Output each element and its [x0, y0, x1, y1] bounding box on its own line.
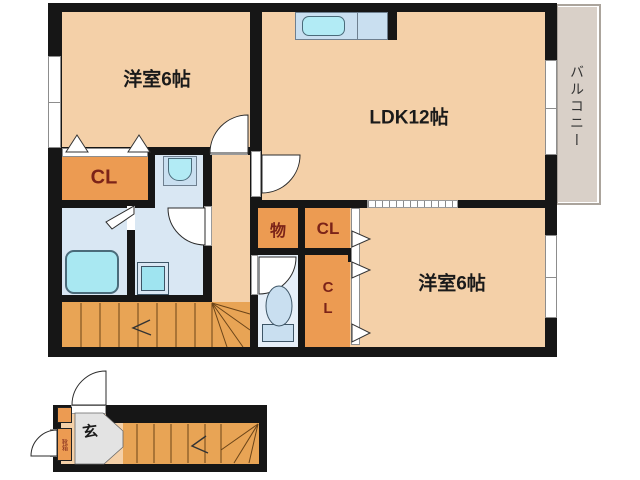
wall-bottom [48, 347, 557, 357]
bedroom2-label: 洋室6帖 [418, 269, 486, 296]
closet1-door-strip [62, 148, 148, 157]
wall-kitchen-stub [388, 3, 397, 40]
window-ldk-balcony [545, 60, 557, 155]
kitchen-counter-divider [357, 12, 358, 40]
wall-ldk-bottom-left [250, 200, 367, 208]
door-entrance [72, 371, 106, 405]
door-opening-ldk [251, 151, 261, 197]
wall-column-mid [250, 248, 358, 255]
window-bedroom2 [545, 235, 557, 318]
wash-basin-bowl [168, 158, 192, 181]
entrance-label: 玄 [81, 420, 99, 443]
wall-ldk-bottom-right [458, 200, 545, 208]
shoe-cabinet-label: 靴箱 [60, 439, 69, 451]
closet3-door-strip [351, 208, 360, 345]
kitchen-sink [302, 16, 345, 36]
entrance-top-thick-wall [106, 405, 259, 423]
floor-plan: 洋室6帖 LDK12帖 洋室6帖 バルコニー CL 物 CL CL 玄 靴箱 [0, 0, 640, 480]
storage-label: 物 [270, 217, 286, 241]
stairs-upper [62, 302, 250, 347]
shoe-cabinet-upper [57, 407, 72, 423]
wall-storage-closet2 [298, 208, 305, 248]
wall-toilet-closet3 [298, 255, 305, 347]
sliding-door-ldk-bedroom2 [367, 200, 458, 208]
door-opening-washroom [204, 206, 212, 246]
bathtub [65, 250, 119, 294]
stairs-lower [123, 423, 259, 464]
washing-machine [141, 266, 165, 291]
window-left [48, 56, 61, 148]
door-opening-entrance [71, 405, 106, 414]
bedroom1-label: 洋室6帖 [123, 65, 191, 92]
wall-top [48, 3, 557, 12]
door-opening-toilet [251, 255, 258, 295]
closet2-label: CL [317, 219, 340, 239]
ldk-label: LDK12帖 [369, 103, 448, 130]
wall-wet-bottom [48, 295, 212, 302]
closet3-label: CL [320, 279, 337, 321]
toilet-tank [262, 324, 294, 342]
wall-closet1-bottom [48, 200, 155, 208]
balcony-label: バルコニー [567, 65, 587, 150]
closet1-label: CL [91, 167, 118, 190]
door-opening-bedroom1 [210, 146, 248, 155]
door-opening-bathroom [127, 206, 135, 230]
